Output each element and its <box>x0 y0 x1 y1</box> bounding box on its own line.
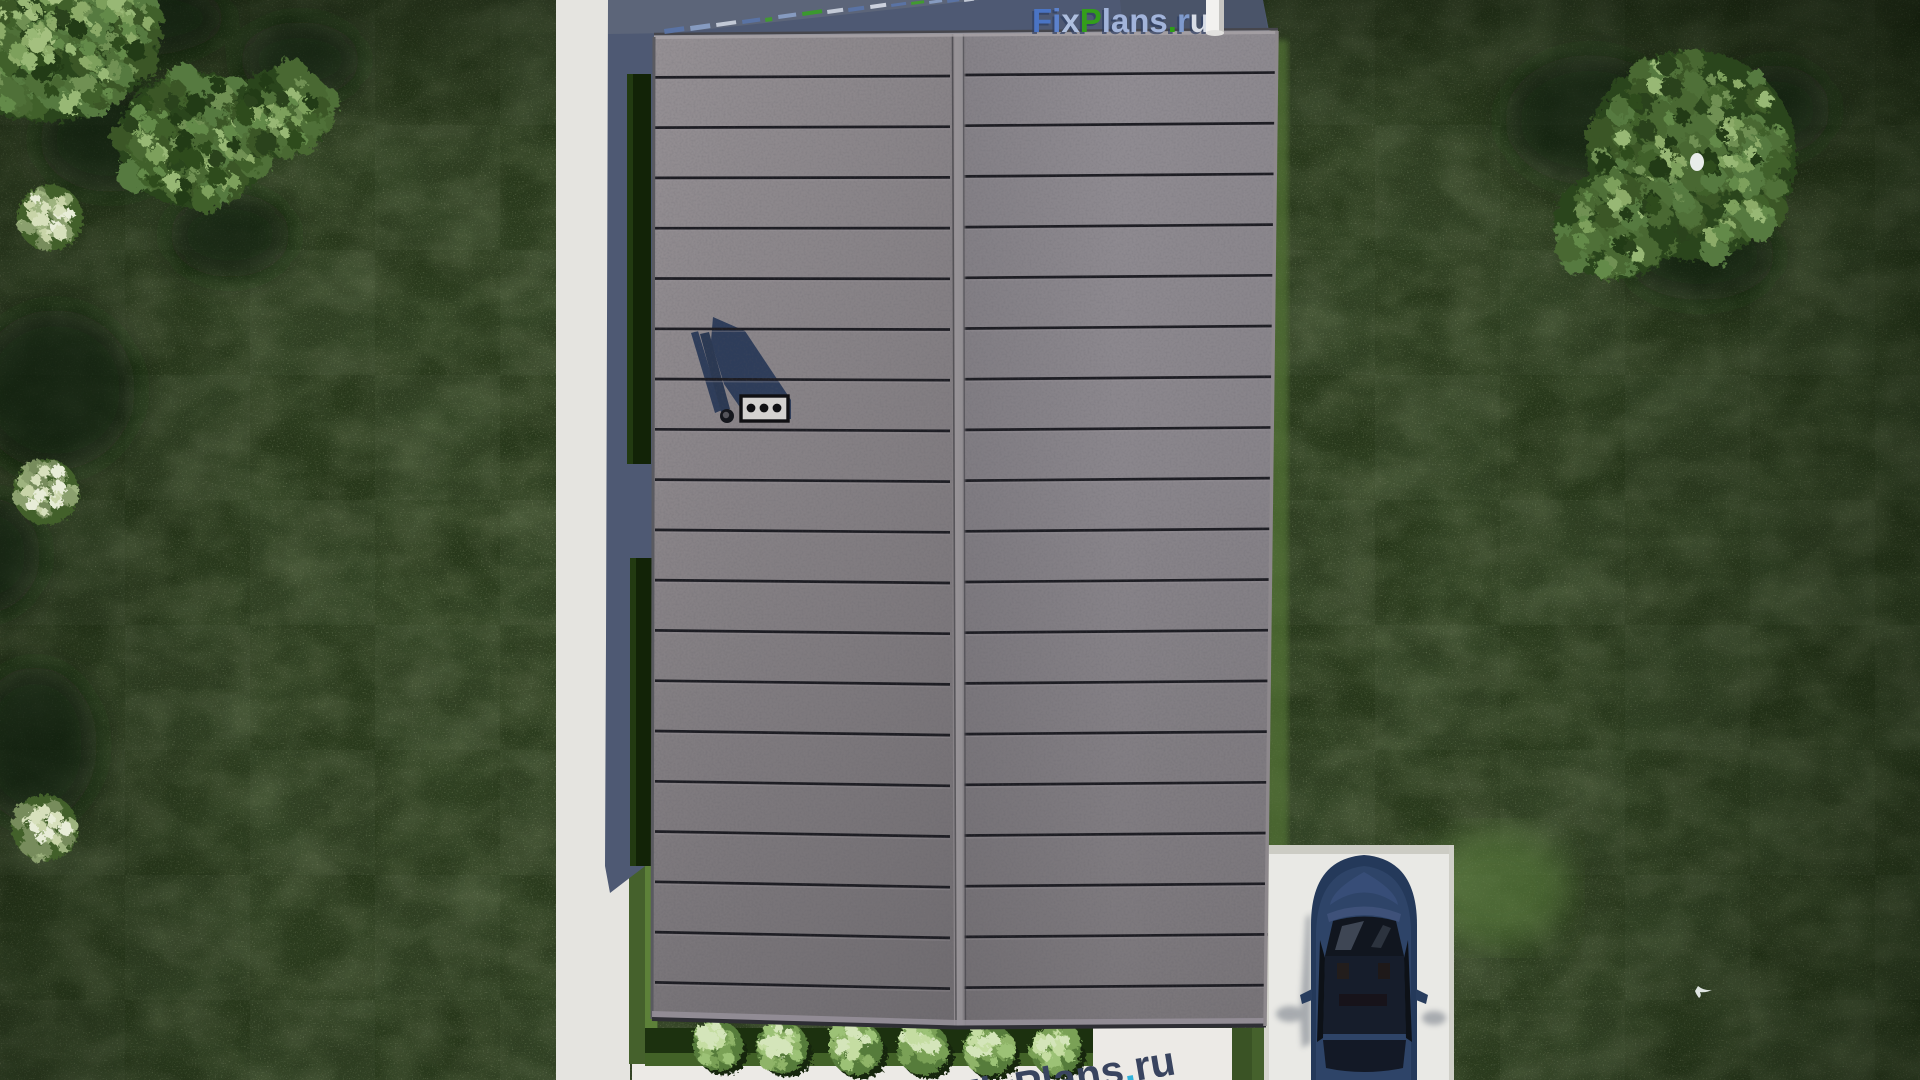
svg-text:FixPlans.ru: FixPlans.ru <box>1032 2 1210 39</box>
